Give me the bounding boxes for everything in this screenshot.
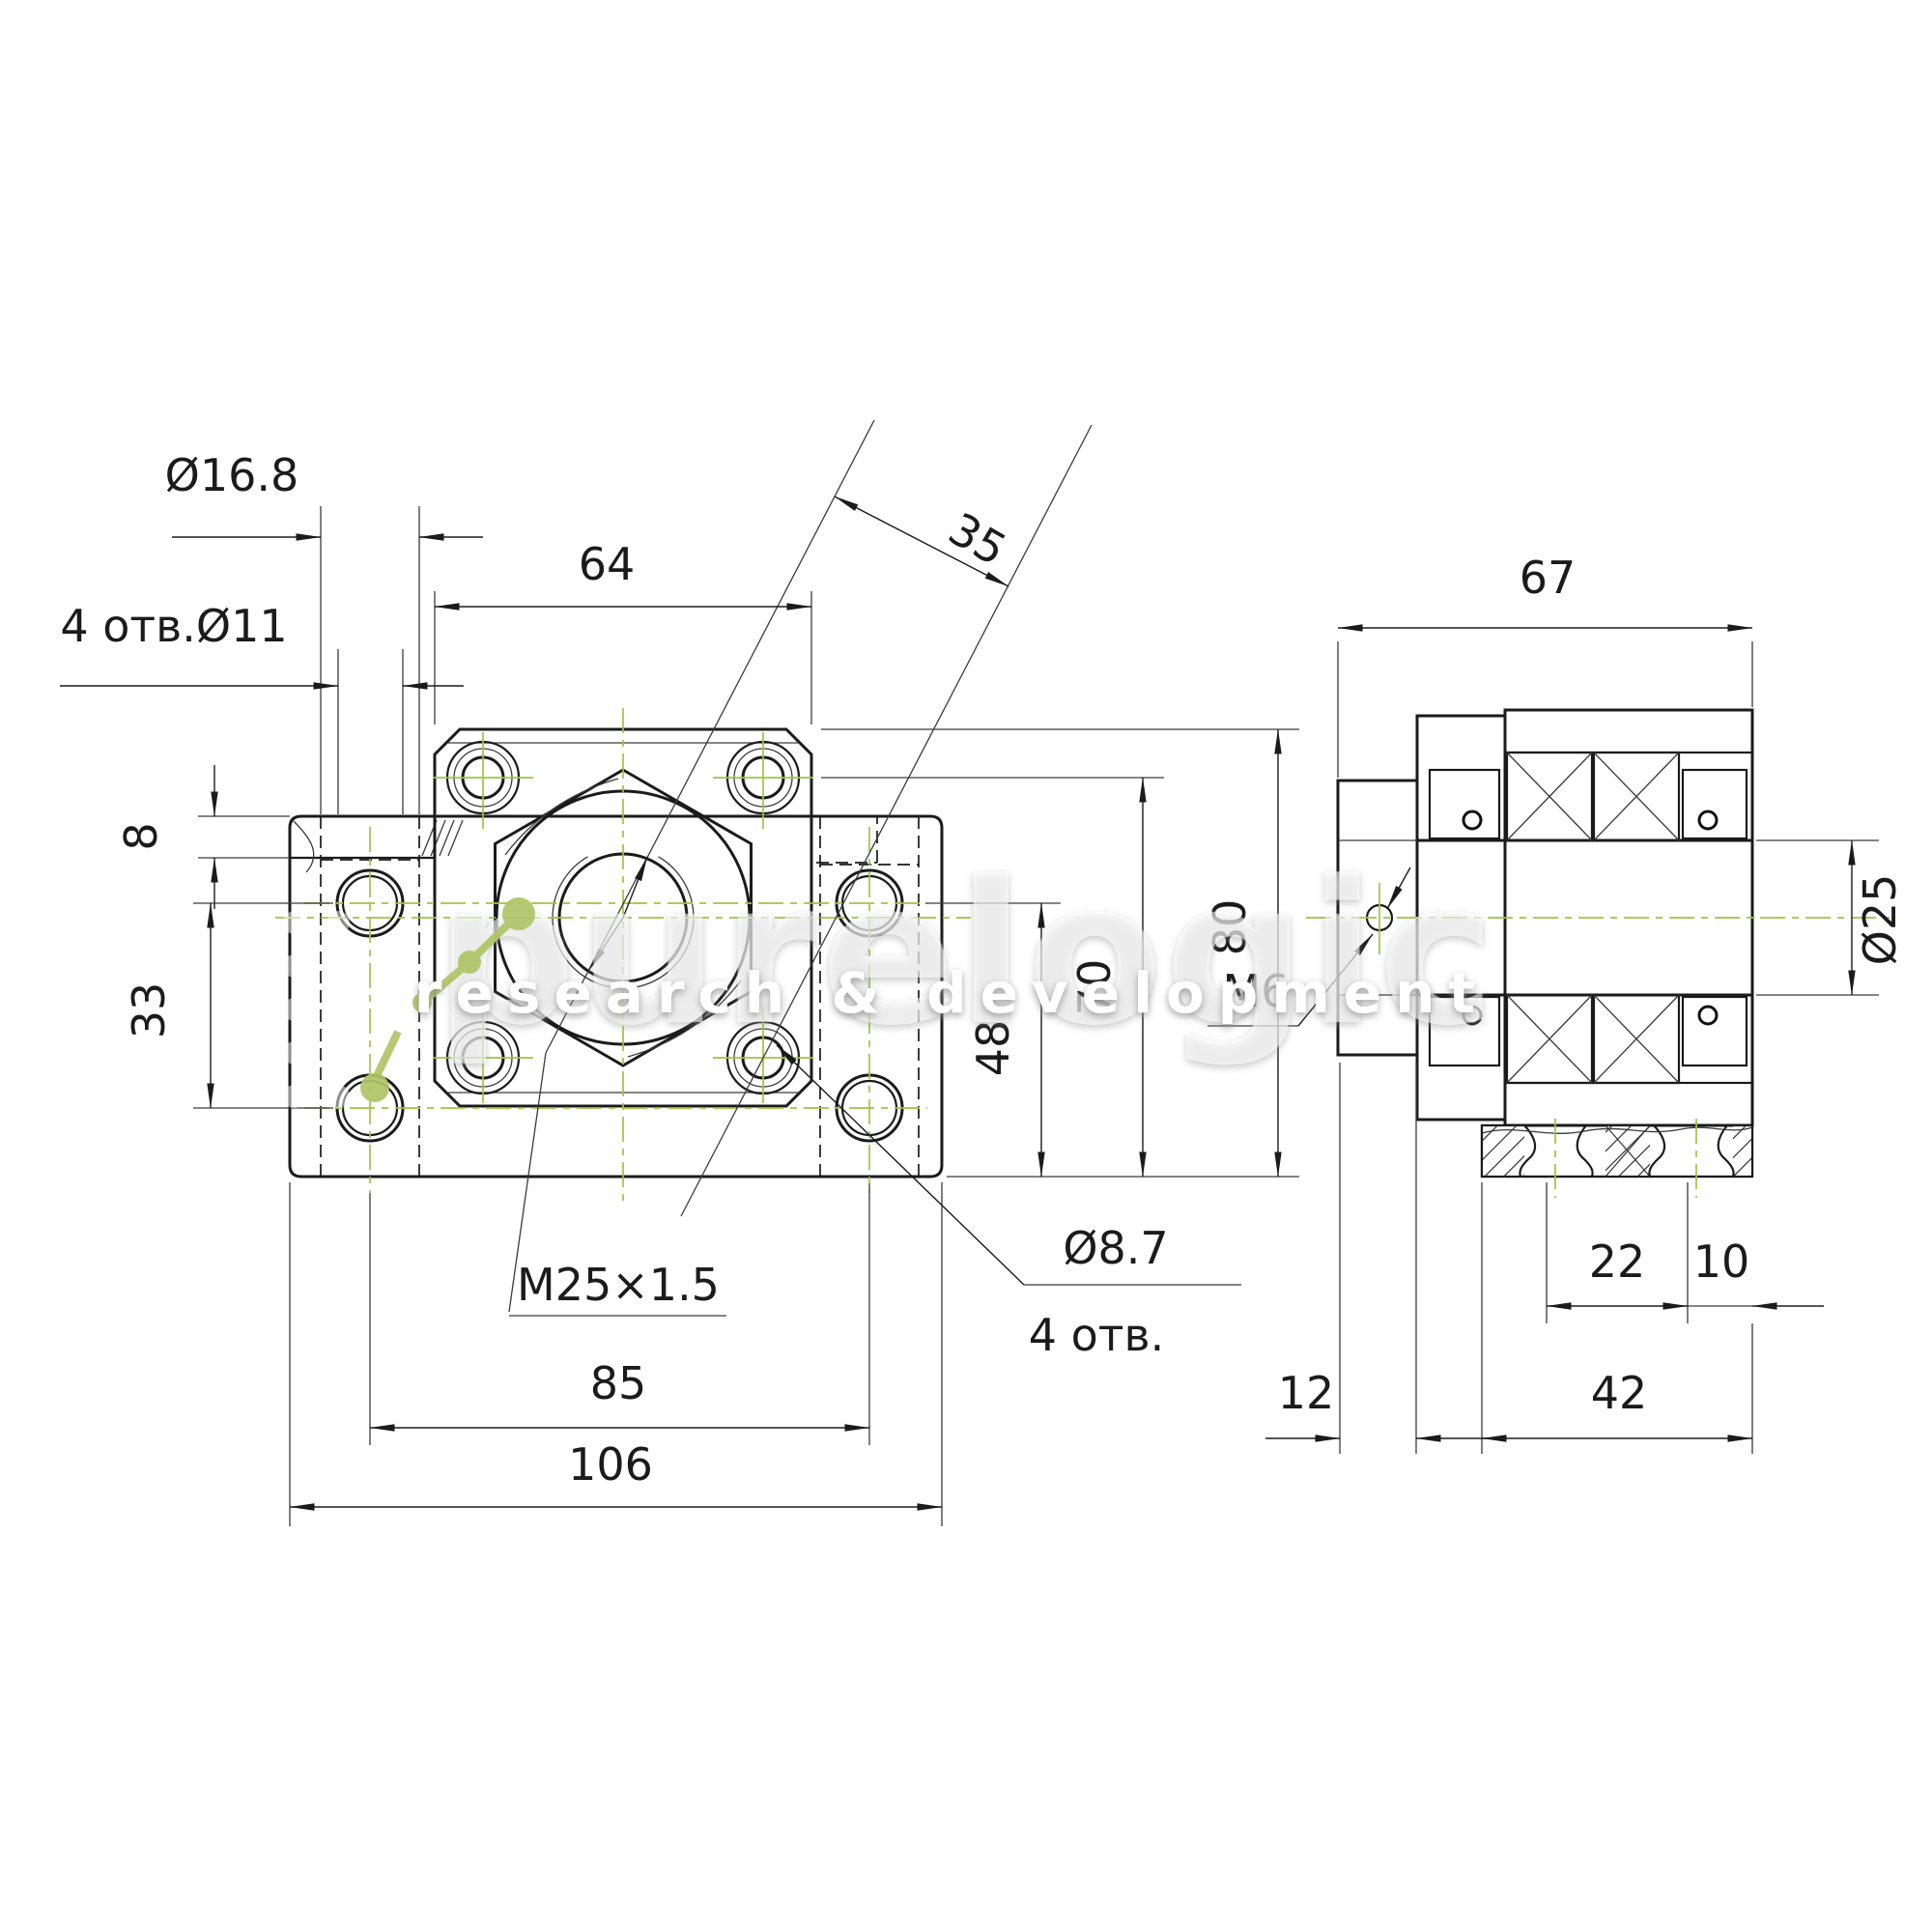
svg-text:Ø16.8: Ø16.8: [165, 449, 299, 501]
dim-106: 106: [290, 1182, 942, 1526]
svg-text:106: 106: [568, 1438, 653, 1491]
watermark-tagline-text: research & development: [414, 960, 1489, 1026]
svg-text:Ø25: Ø25: [1854, 874, 1906, 966]
dim-flange-width: 64: [435, 538, 811, 724]
svg-text:Ø8.7: Ø8.7: [1063, 1222, 1168, 1274]
dim-10: 10: [1688, 1236, 1824, 1306]
dim-diag-offset: 35: [835, 497, 1015, 586]
svg-text:42: 42: [1591, 1367, 1648, 1419]
watermark: purelogic research & development: [283, 839, 1497, 1108]
bearing-upper: [1507, 753, 1679, 840]
side-base: [1482, 1125, 1752, 1177]
dim-mount-holes: 4 отв.Ø11: [60, 600, 464, 814]
svg-text:8: 8: [115, 822, 167, 850]
svg-text:64: 64: [579, 538, 636, 590]
technical-drawing: 64 35 Ø16.8 4 отв.Ø11 8: [0, 0, 1932, 1932]
svg-text:12: 12: [1278, 1367, 1335, 1419]
svg-text:4 отв.Ø11: 4 отв.Ø11: [60, 600, 287, 652]
svg-text:M25×1.5: M25×1.5: [517, 1259, 720, 1311]
dim-42: 42: [1482, 1182, 1752, 1454]
seal-right-lower: [1683, 997, 1747, 1065]
svg-text:4 отв.: 4 отв.: [1029, 1309, 1165, 1361]
dim-12: 12: [1265, 1063, 1490, 1454]
dim-85: 85: [370, 1183, 869, 1445]
break-squiggle: [294, 821, 314, 872]
bearing-lower: [1507, 995, 1679, 1083]
dim-22: 22: [1547, 1182, 1688, 1323]
watermark-brand-text: purelogic: [435, 839, 1497, 1069]
dim-67: 67: [1338, 552, 1752, 778]
drawing-page: 64 35 Ø16.8 4 отв.Ø11 8: [0, 0, 1932, 1932]
svg-text:22: 22: [1589, 1236, 1646, 1288]
svg-text:85: 85: [590, 1357, 647, 1409]
svg-text:35: 35: [940, 502, 1015, 576]
seal-right-upper: [1683, 770, 1747, 838]
svg-text:10: 10: [1693, 1236, 1750, 1288]
callout-thread: M25×1.5: [509, 1259, 726, 1316]
svg-text:33: 33: [123, 982, 175, 1039]
svg-text:67: 67: [1520, 552, 1577, 604]
dim-step-height: 8: [115, 765, 290, 909]
